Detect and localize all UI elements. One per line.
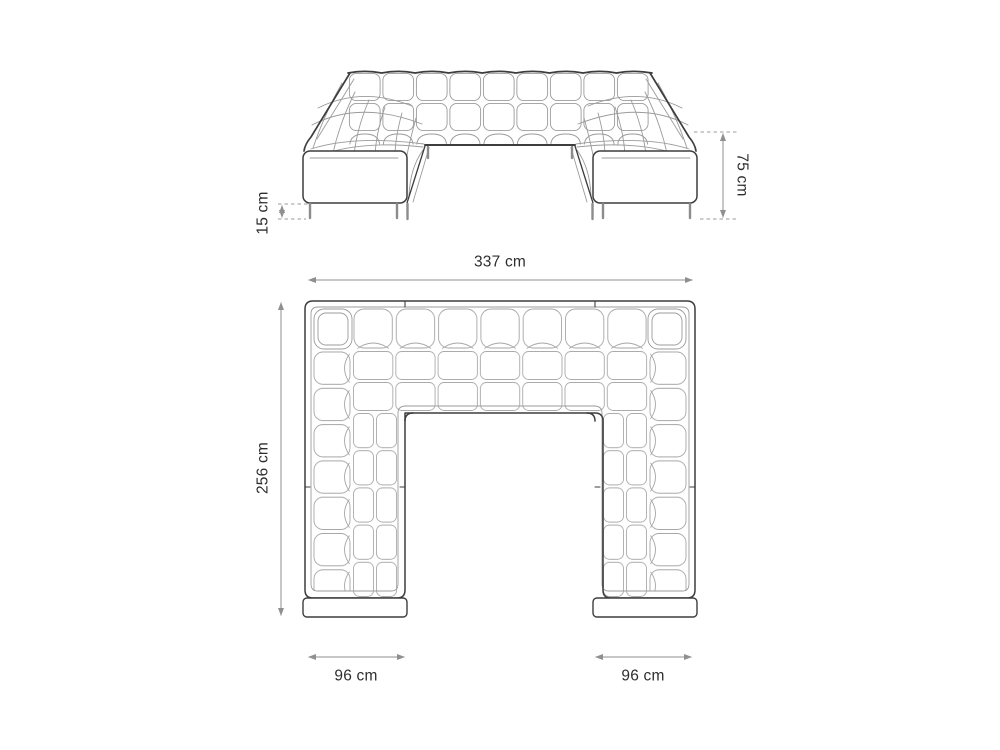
plan-back-band-right <box>648 350 688 591</box>
armrest-front-panel <box>303 151 407 203</box>
right-arm-width-dimension: 96 cm <box>596 657 692 685</box>
diagram-canvas: 15 cm 75 cm <box>0 0 1000 750</box>
right-arm-base-plate <box>593 598 697 617</box>
total-height-label: 75 cm <box>734 153 751 196</box>
right-arm-width-label: 96 cm <box>621 668 664 685</box>
total-width-dimension: 337 cm <box>309 254 693 281</box>
total-depth-label: 256 cm <box>255 442 272 494</box>
seat-cushion-row <box>348 132 650 145</box>
plan-middle-seat-grid <box>352 350 648 412</box>
left-arm-width-dimension: 96 cm <box>309 657 405 685</box>
plan-back-band-top <box>352 307 648 350</box>
left-arm-width-label: 96 cm <box>334 668 377 685</box>
sofa-dimension-diagram: 15 cm 75 cm <box>0 0 1000 750</box>
plan-right-arm-seat-grid <box>602 412 648 598</box>
front-elevation-view: 15 cm 75 cm <box>255 71 751 234</box>
front-sofa-drawing <box>303 71 697 219</box>
top-plan-view: 337 cm 256 cm 96 cm 96 cm <box>255 254 698 685</box>
plan-back-band-left <box>312 350 352 591</box>
leg-height-dimension: 15 cm <box>255 191 309 234</box>
total-depth-dimension: 256 cm <box>255 303 282 616</box>
left-arm-base-plate <box>303 598 407 617</box>
backrest-tuft-grid <box>348 72 650 132</box>
total-width-label: 337 cm <box>474 254 526 271</box>
total-height-dimension: 75 cm <box>694 132 751 219</box>
plan-left-arm-seat-grid <box>352 412 398 598</box>
plan-sofa-drawing <box>303 301 697 617</box>
leg-height-label: 15 cm <box>255 191 272 234</box>
